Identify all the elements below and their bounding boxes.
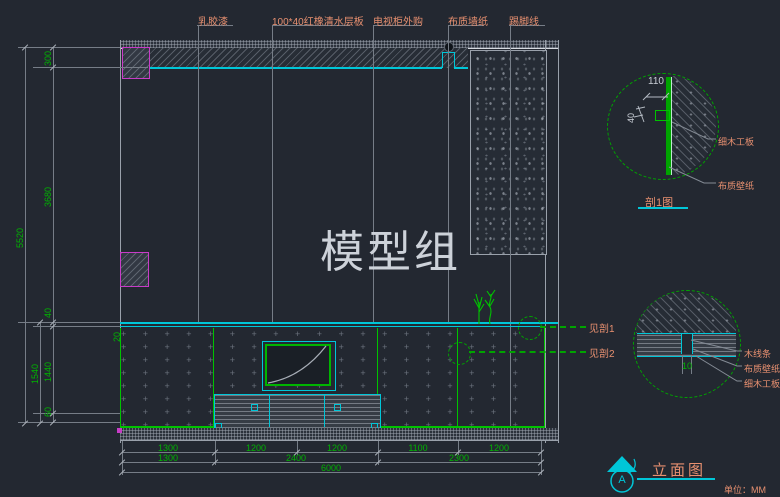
molding-profile-line	[148, 67, 442, 69]
units-note: 单位：MM	[724, 483, 766, 496]
dim-b6: 1300	[138, 453, 198, 463]
dim-b3: 1200	[307, 443, 367, 453]
dim-b7: 2400	[266, 453, 326, 463]
blocking-top	[122, 47, 150, 79]
counter-bottom-line	[120, 326, 545, 327]
dim-b4: 1100	[388, 443, 448, 453]
detail1-callout-wallpaper: 布质壁纸	[718, 179, 754, 192]
blocking-bottom	[120, 252, 149, 287]
leader-2	[272, 25, 273, 322]
detail2-notch	[681, 334, 693, 354]
section-ref-circle-1	[518, 316, 542, 340]
dim-b9: 6000	[301, 463, 361, 473]
section-leader-2	[469, 351, 586, 353]
detail1-callout-blockboard: 细木工板	[718, 135, 754, 148]
molding-profile-line-right	[454, 67, 468, 69]
drawer-divider-2	[324, 394, 325, 427]
molding-notch-right	[454, 52, 455, 68]
dim-panel-thickness: 20	[112, 332, 122, 342]
molding-notch-left	[442, 52, 443, 68]
section-leader-1	[540, 326, 586, 328]
callout-latex-paint: 乳胶漆	[198, 13, 228, 28]
dimline-1540	[40, 322, 41, 423]
detail1-title-underline	[638, 207, 688, 209]
dim-chain-40: 40	[43, 308, 53, 318]
detail1-batten-rect	[655, 110, 670, 121]
panel-edge-left	[120, 328, 121, 427]
dim-chain-1440: 1440	[43, 362, 53, 382]
section-callout-1: 见剖1	[589, 320, 615, 335]
drawer-knob-2	[334, 404, 341, 411]
callout-oak-shelf: 100*40红橡清水层板	[272, 13, 364, 28]
watermark-text: 模型组	[320, 216, 461, 280]
elevation-marker-letter: A	[614, 474, 630, 486]
drawer-unit	[214, 394, 381, 429]
dim-b1: 1300	[138, 443, 198, 453]
section-ref-circle-2	[448, 342, 471, 365]
detail2-callout-blockboard: 细木工板	[744, 377, 780, 390]
dim-chain-300: 300	[43, 51, 53, 66]
downlight-dot	[444, 42, 454, 52]
detail1-dim-40: 40	[626, 113, 636, 123]
callout-tv-cabinet: 电视柜外购	[373, 13, 423, 28]
wallpaper-panel	[470, 50, 547, 255]
ext-y326	[33, 326, 120, 327]
detail1-dim-110: 110	[648, 76, 664, 87]
leader-1	[198, 25, 199, 322]
drawer-divider-1	[269, 394, 270, 427]
ext-y422	[18, 422, 120, 423]
detail2-hatch	[636, 293, 736, 333]
detail1-green-board	[666, 77, 672, 175]
dim-chain-3680: 3680	[43, 187, 53, 207]
floor-line	[120, 440, 558, 441]
dimline-5520	[25, 47, 26, 423]
detail2-callout-wallpaper: 布质壁纸	[744, 362, 780, 375]
detail1-clip	[608, 74, 716, 177]
ceiling-slab-hatch	[120, 40, 558, 48]
dim-subtotal: 1540	[30, 364, 40, 384]
ext-y322	[18, 322, 120, 323]
detail2-dim-10: 10	[677, 361, 697, 371]
skirting-hatch	[120, 428, 558, 440]
dim-overall-height: 5520	[15, 228, 25, 248]
drawer-knob-1	[251, 404, 258, 411]
ext-y47	[18, 47, 120, 48]
wall-right-outer-line	[558, 40, 559, 443]
tv-screen	[265, 344, 331, 386]
panel-edge-right	[544, 328, 545, 427]
section-callout-2: 见剖2	[589, 345, 615, 360]
dimline-left-chain	[53, 47, 54, 423]
detail1-hatch	[670, 76, 716, 175]
dim-b5: 1200	[469, 443, 529, 453]
plant-icon	[474, 290, 495, 324]
detail2-callout-wood-trim: 木线条	[744, 347, 771, 360]
cad-elevation-drawing: 乳胶漆 100*40红橡清水层板 电视柜外购 布质墙纸 踢脚线 模型组 + + …	[0, 0, 780, 497]
dim-b2: 1200	[226, 443, 286, 453]
callout-skirting: 踢脚线	[509, 13, 539, 28]
view-title: 立面图	[652, 459, 706, 480]
molding-hatch	[148, 48, 468, 68]
counter-top-line	[120, 322, 558, 324]
dim-b8: 2300	[429, 453, 489, 463]
magenta-marker-dot	[117, 428, 122, 433]
callout-fabric-wallpaper: 布质墙纸	[448, 13, 488, 28]
